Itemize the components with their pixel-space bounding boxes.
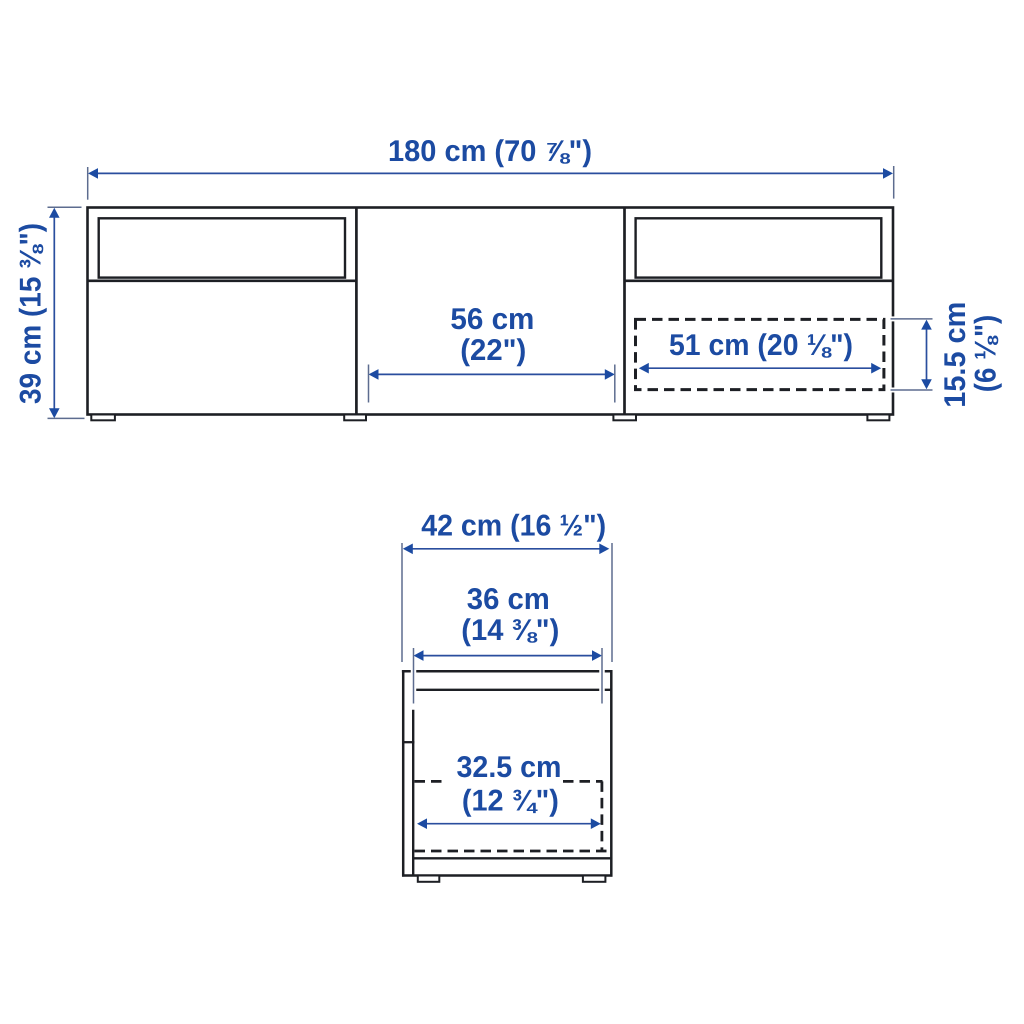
svg-text:(22"): (22") (460, 334, 526, 367)
svg-text:(12 ¾"): (12 ¾") (462, 785, 559, 818)
svg-text:42 cm (16 ½"): 42 cm (16 ½") (421, 510, 606, 543)
svg-text:56 cm: 56 cm (450, 303, 534, 336)
svg-text:32.5 cm: 32.5 cm (457, 751, 562, 784)
svg-text:36 cm: 36 cm (467, 583, 550, 616)
svg-text:15.5 cm: 15.5 cm (939, 302, 972, 408)
svg-text:51 cm (20 ⅛"): 51 cm (20 ⅛") (669, 329, 853, 362)
svg-text:(6 ⅛"): (6 ⅛") (970, 315, 1003, 393)
svg-text:(14 ⅜"): (14 ⅜") (461, 614, 559, 647)
svg-text:39 cm (15 ⅜"): 39 cm (15 ⅜") (15, 223, 48, 404)
svg-text:180 cm (70 ⅞"): 180 cm (70 ⅞") (388, 135, 592, 168)
